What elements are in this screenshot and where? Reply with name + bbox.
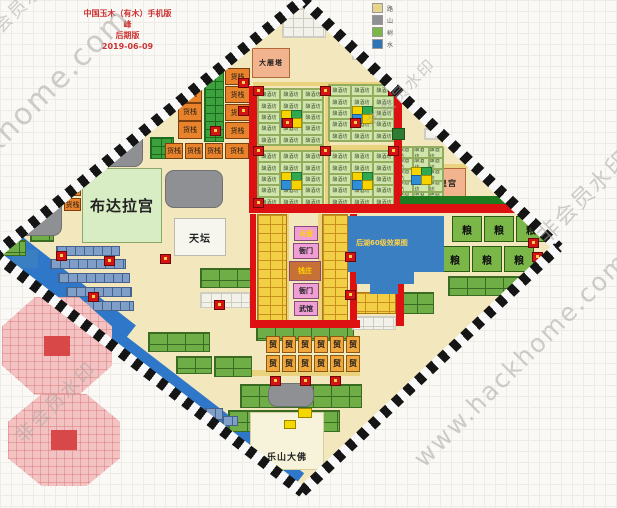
market-building: 衙门 (293, 283, 319, 299)
tree (202, 14, 215, 26)
brewery-cell: 酿酒坊 (351, 131, 373, 142)
brewery-cell: 酿酒坊 (373, 96, 395, 107)
brewery-cell: 酿酒坊 (302, 100, 324, 111)
red-mini-block (253, 198, 264, 208)
map-title-line: 后期版 (55, 30, 200, 41)
brewery-cell: 酿酒坊 (413, 147, 428, 158)
red-mini-block (160, 254, 171, 264)
brewery-cell: 酿酒坊 (258, 174, 280, 185)
red-mini-block (350, 118, 361, 128)
legend-color-chip (372, 39, 383, 49)
tree (200, 34, 213, 46)
legend-row: 树 (372, 26, 393, 38)
landmark-label: 布达拉宫 (90, 195, 154, 216)
red-mini-block (210, 126, 221, 136)
red-mini-block (238, 106, 249, 116)
brewery-cell: 酿酒坊 (329, 96, 351, 107)
warehouse-block: 货栈 (205, 143, 223, 159)
legend-label: 路 (387, 4, 393, 13)
trade-block: 贸 (282, 336, 296, 353)
warehouse-block: 货栈 (185, 143, 203, 159)
red-mini-block (320, 146, 331, 156)
brewery-cell: 酿酒坊 (373, 185, 395, 196)
brewery-cluster: 酿酒坊酿酒坊酿酒坊酿酒坊酿酒坊酿酒坊酿酒坊酿酒坊酿酒坊酿酒坊酿酒坊酿酒坊酿酒坊酿… (328, 84, 394, 141)
red-mini-block (104, 256, 115, 266)
brewery-cell: 酿酒坊 (329, 108, 351, 119)
red-mini-block (528, 238, 539, 248)
brewery-cell: 酿酒坊 (373, 108, 395, 119)
legend-row: 路 (372, 2, 393, 14)
red-mini-block (345, 290, 356, 300)
district-cells (148, 332, 210, 352)
map-title: 中国玉木（有木）手机版峰后期版2019-06-09 (55, 8, 200, 52)
trade-block: 贸 (266, 355, 280, 372)
pink-octagon-structure (2, 297, 112, 395)
brewery-cell: 酿酒坊 (329, 185, 351, 196)
landmark-label: 天坛 (189, 230, 211, 245)
octagon-center-block (44, 336, 70, 356)
cluster-center-icon (291, 180, 302, 190)
market-building: 兵营 (294, 226, 318, 241)
red-mini-block (214, 300, 225, 310)
red-mini-block (253, 86, 264, 96)
brewery-cell: 酿酒坊 (280, 151, 302, 162)
yellow-mini-block (284, 420, 296, 429)
red-road (249, 204, 535, 213)
brewery-cell: 酿酒坊 (258, 185, 280, 196)
red-mini-block (253, 146, 264, 156)
cluster-center-icon (362, 180, 373, 190)
brewery-cell: 酿酒坊 (329, 131, 351, 142)
district-cells (322, 214, 348, 322)
mountain (268, 383, 314, 407)
red-road (250, 214, 256, 326)
brewery-cluster: 酿酒坊酿酒坊酿酒坊酿酒坊酿酒坊酿酒坊酿酒坊酿酒坊酿酒坊酿酒坊酿酒坊酿酒坊酿酒坊酿… (397, 146, 443, 202)
red-mini-block (404, 76, 415, 86)
map-title-line: 2019-06-09 (55, 41, 200, 52)
yellow-mini-block (298, 408, 312, 418)
market-building: 衙门 (293, 243, 319, 259)
mountain (165, 170, 223, 208)
map-title-line: 峰 (55, 19, 200, 30)
lake (370, 284, 398, 294)
trade-block: 贸 (282, 355, 296, 372)
brewery-cell: 酿酒坊 (329, 162, 351, 173)
market-building: 钱庄 (289, 261, 321, 281)
brewery-cell: 酿酒坊 (258, 162, 280, 173)
brewery-cell: 酿酒坊 (329, 85, 351, 96)
red-mini-block (282, 118, 293, 128)
warehouse-block: 货栈 (225, 86, 250, 103)
brewery-cell: 酿酒坊 (258, 135, 280, 146)
red-mini-block (345, 252, 356, 262)
brewery-cell: 酿酒坊 (351, 151, 373, 162)
lake (356, 270, 414, 284)
district-cells (257, 214, 287, 322)
legend-row: 山 (372, 14, 393, 26)
screenshot-root: { "title": { "lines": ["中国玉木（有木）手机版", "峰… (0, 0, 617, 495)
trade-block: 贸 (346, 355, 360, 372)
brewery-cell: 酿酒坊 (302, 162, 324, 173)
cluster-center-icon (421, 175, 432, 185)
red-mini-block (330, 376, 341, 386)
grain-block: 粮 (452, 216, 482, 242)
trade-block: 贸 (330, 336, 344, 353)
brewery-cell: 酿酒坊 (302, 174, 324, 185)
trade-block: 贸 (346, 336, 360, 353)
red-mini-block (270, 376, 281, 386)
legend-label: 树 (387, 28, 393, 37)
lake-caption: 后湖60级效果图 (356, 238, 408, 248)
grain-block: 粮 (472, 246, 502, 272)
district-cells (140, 63, 175, 83)
district-cells (200, 292, 250, 308)
tree (392, 128, 405, 140)
red-mini-block (300, 376, 311, 386)
legend-color-chip (372, 27, 383, 37)
brewery-cell: 酿酒坊 (280, 135, 302, 146)
brewery-cell: 酿酒坊 (329, 119, 351, 130)
landmark-label: 大雁塔 (259, 58, 283, 68)
landmark-tiantan: 天坛 (174, 218, 226, 256)
brewery-cell: 酿酒坊 (302, 123, 324, 134)
district-cells (352, 292, 396, 314)
brewery-cell: 酿酒坊 (329, 151, 351, 162)
warehouse-block: 货栈 (165, 143, 183, 159)
brewery-cell: 酿酒坊 (302, 135, 324, 146)
trade-block: 贸 (330, 355, 344, 372)
red-mini-block (88, 292, 99, 302)
red-mini-block (388, 146, 399, 156)
district-cells (176, 356, 212, 374)
brewery-cell: 酿酒坊 (373, 174, 395, 185)
warehouse-block: 货栈 (225, 122, 250, 139)
trade-block: 贸 (298, 336, 312, 353)
tree (234, 16, 247, 28)
trade-block: 贸 (266, 336, 280, 353)
brewery-cell: 酿酒坊 (373, 162, 395, 173)
grain-block: 粮 (440, 246, 470, 272)
brewery-cell: 酿酒坊 (258, 112, 280, 123)
tree (216, 30, 229, 42)
map-title-line: 中国玉木（有木）手机版 (55, 8, 200, 19)
district-cells (214, 356, 252, 377)
legend-row: 水 (372, 38, 393, 50)
district-cells (200, 268, 252, 288)
brewery-cluster: 酿酒坊酿酒坊酿酒坊酿酒坊酿酒坊酿酒坊酿酒坊酿酒坊酿酒坊酿酒坊酿酒坊酿酒坊酿酒坊酿… (257, 150, 323, 207)
brewery-cell: 酿酒坊 (302, 112, 324, 123)
trade-block: 贸 (314, 336, 328, 353)
grain-block: 粮 (484, 216, 514, 242)
brewery-cell: 酿酒坊 (329, 174, 351, 185)
legend-color-chip (372, 15, 383, 25)
watermark-text: 非会员水印 (0, 0, 62, 52)
warehouse-block: 货栈 (178, 121, 202, 139)
tree (218, 4, 231, 16)
octagon-center-block (51, 430, 77, 450)
pink-octagon-structure (8, 394, 120, 486)
red-mini-block (320, 86, 331, 96)
brewery-cell: 酿酒坊 (429, 147, 444, 158)
brewery-cluster: 酿酒坊酿酒坊酿酒坊酿酒坊酿酒坊酿酒坊酿酒坊酿酒坊酿酒坊酿酒坊酿酒坊酿酒坊酿酒坊酿… (328, 150, 394, 207)
market-building: 武馆 (294, 301, 318, 316)
brewery-cell: 酿酒坊 (351, 85, 373, 96)
red-mini-block (56, 251, 67, 261)
warehouse-block: 货栈 (225, 143, 249, 159)
cluster-center-icon (362, 114, 373, 124)
brewery-cluster: 酿酒坊酿酒坊酿酒坊酿酒坊酿酒坊酿酒坊酿酒坊酿酒坊酿酒坊酿酒坊酿酒坊酿酒坊酿酒坊酿… (257, 88, 323, 145)
legend-color-chip (372, 3, 383, 13)
dock-row (66, 287, 132, 297)
trade-block: 贸 (298, 355, 312, 372)
brewery-cell: 酿酒坊 (258, 123, 280, 134)
trade-block: 贸 (314, 355, 328, 372)
map-legend: 路山树水 (372, 2, 393, 50)
red-mini-block (238, 78, 249, 88)
brewery-cell: 酿酒坊 (258, 100, 280, 111)
brewery-cell: 酿酒坊 (302, 185, 324, 196)
dock-row (58, 273, 130, 283)
landmark-label: 乐山大佛 (267, 450, 307, 463)
brewery-cell: 酿酒坊 (280, 89, 302, 100)
landmark-dayanta: 大雁塔 (252, 48, 290, 78)
legend-label: 山 (387, 16, 393, 25)
red-road (250, 320, 360, 328)
legend-label: 水 (387, 40, 393, 49)
